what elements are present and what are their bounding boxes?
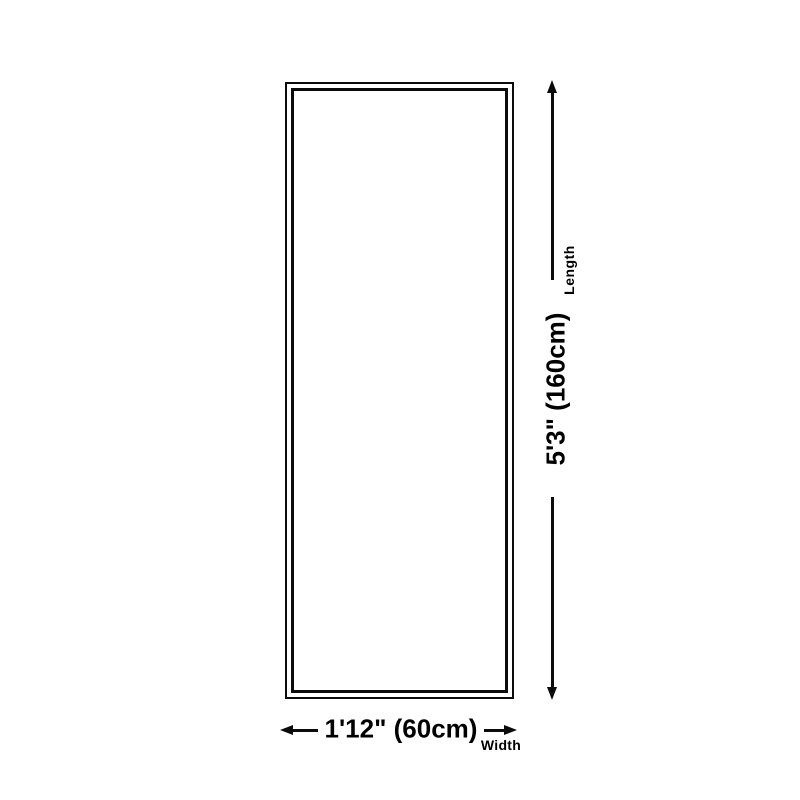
arrow-right-icon [504, 725, 517, 735]
length-value: 5'3" (160cm) [541, 313, 572, 466]
product-outline-inner [291, 88, 508, 693]
length-label: Length [561, 245, 577, 295]
width-dimension-line-left [292, 729, 318, 732]
width-dimension-line-right [484, 729, 506, 732]
product-outline-outer [285, 82, 514, 699]
width-value: 1'12" (60cm) [325, 714, 478, 745]
length-dimension-line-top [551, 92, 554, 280]
arrow-down-icon [547, 687, 557, 700]
product-dimension-diagram: Length 5'3" (160cm) 1'12" (60cm) Width [0, 0, 800, 800]
width-label: Width [481, 737, 521, 753]
length-dimension-line-bottom [551, 497, 554, 689]
